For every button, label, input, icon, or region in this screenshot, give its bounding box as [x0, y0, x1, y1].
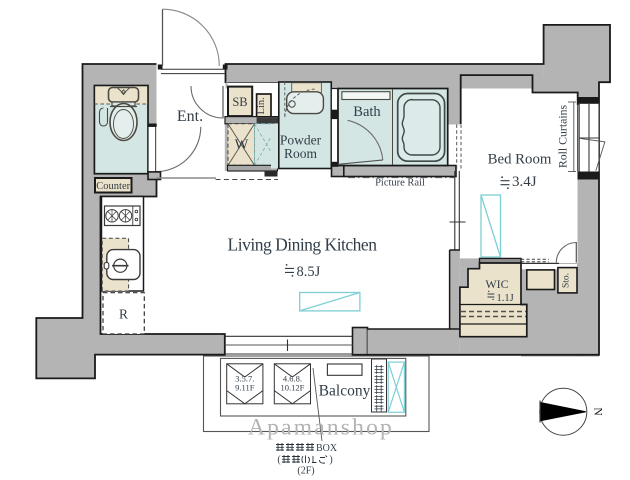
svg-text:Apamanshop: Apamanshop — [248, 415, 394, 441]
svg-text:W: W — [235, 137, 249, 153]
svg-text:Ent.: Ent. — [177, 108, 203, 125]
svg-text:Lin.: Lin. — [256, 97, 267, 114]
svg-text:Bed Room: Bed Room — [488, 152, 552, 168]
svg-text:1.1J: 1.1J — [497, 293, 514, 304]
svg-text:Picture Rail: Picture Rail — [375, 178, 425, 189]
svg-text:9.11F: 9.11F — [235, 383, 255, 393]
svg-text:WIC: WIC — [485, 277, 508, 291]
svg-text:N: N — [592, 407, 604, 416]
svg-text:Room: Room — [284, 146, 318, 161]
svg-text:Counter: Counter — [96, 181, 130, 192]
svg-text:): ) — [329, 455, 332, 466]
svg-text:BOX: BOX — [316, 443, 338, 454]
svg-text:Roll Curtains: Roll Curtains — [556, 104, 570, 168]
svg-text:Bath: Bath — [353, 104, 381, 120]
svg-text:Sto.: Sto. — [562, 273, 572, 288]
svg-text:(2F): (2F) — [297, 466, 314, 477]
svg-text:8.5J: 8.5J — [297, 264, 321, 280]
svg-text:10.12F: 10.12F — [280, 383, 304, 393]
svg-text:Living Dining Kitchen: Living Dining Kitchen — [228, 235, 378, 255]
svg-text:(: ( — [277, 455, 281, 466]
svg-text:R: R — [119, 307, 128, 322]
svg-text:SB: SB — [232, 95, 247, 109]
svg-text:Balcony: Balcony — [319, 383, 371, 400]
svg-text:3.4J: 3.4J — [512, 174, 537, 190]
